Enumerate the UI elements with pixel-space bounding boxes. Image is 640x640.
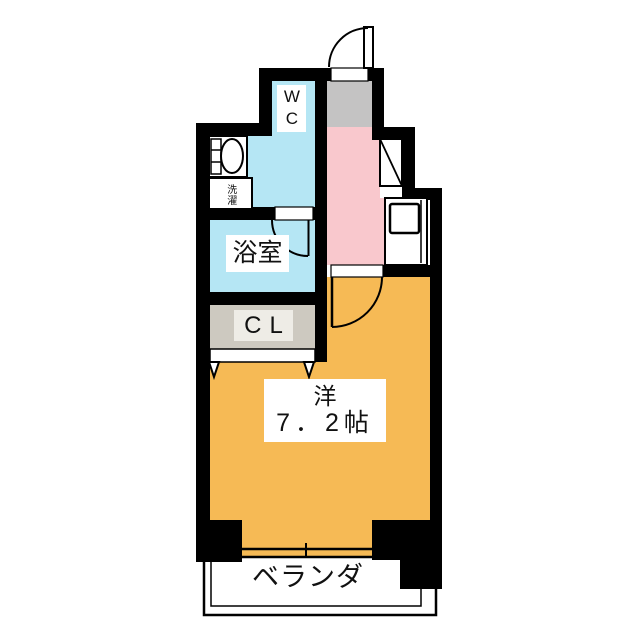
kitchen-area <box>327 127 385 265</box>
wall-washroom-bottom-r <box>313 207 327 220</box>
floor-plan: WC 浴室 CL 洗濯 洋 7．2帖 ベランダ <box>0 0 640 640</box>
wall-right <box>430 200 442 589</box>
wall-right-upper <box>402 140 415 188</box>
living-room-label: 洋 7．2帖 <box>264 379 386 442</box>
entry-door-leaf <box>364 27 373 68</box>
entry-door-threshold <box>331 68 368 81</box>
living-room-name: 洋 <box>314 384 337 408</box>
laundry-label: 洗濯 <box>221 181 238 208</box>
wall-balcony-right-block <box>400 558 442 589</box>
wall-bottom-right-block <box>372 520 430 560</box>
wall-bathroom-bottom <box>196 292 327 305</box>
wall-kitchen-bottom <box>383 265 430 277</box>
closet-label: CL <box>234 310 293 341</box>
closet-door-track <box>210 349 315 362</box>
wc-room-label: WC <box>277 85 306 132</box>
entry-genkan-area <box>327 81 372 127</box>
wall-left <box>196 123 210 562</box>
wall-center <box>315 81 327 362</box>
living-door-opening <box>331 265 383 277</box>
living-room-size: 7．2帖 <box>276 410 374 436</box>
floor-plan-drawing <box>0 0 640 640</box>
wall-entry-right <box>372 68 384 127</box>
vanity-cabinet <box>211 139 221 174</box>
bathroom-label: 浴室 <box>226 235 289 272</box>
bathroom-door-opening <box>275 207 313 220</box>
wall-bottom-left-block <box>196 520 242 562</box>
balcony-label: ベランダ <box>243 561 373 594</box>
entry-door-swing-arc <box>329 28 368 67</box>
